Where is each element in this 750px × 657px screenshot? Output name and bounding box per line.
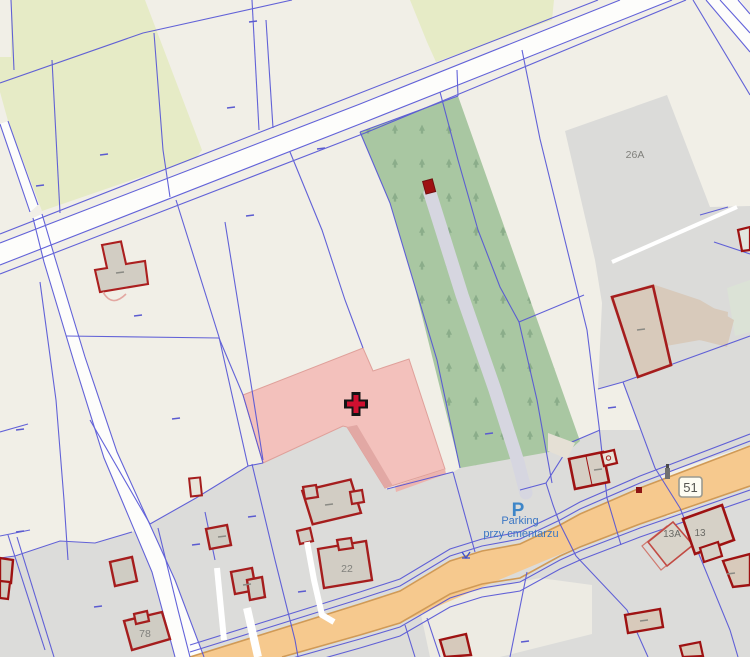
svg-text:78: 78 bbox=[139, 628, 151, 640]
svg-text:22: 22 bbox=[341, 563, 353, 575]
svg-text:51: 51 bbox=[683, 480, 697, 495]
svg-text:13A: 13A bbox=[663, 529, 681, 540]
svg-text:Parking: Parking bbox=[501, 515, 538, 527]
svg-text:przy cmentarzu: przy cmentarzu bbox=[483, 528, 558, 540]
svg-text:13: 13 bbox=[694, 528, 706, 539]
svg-text:26A: 26A bbox=[626, 149, 645, 161]
